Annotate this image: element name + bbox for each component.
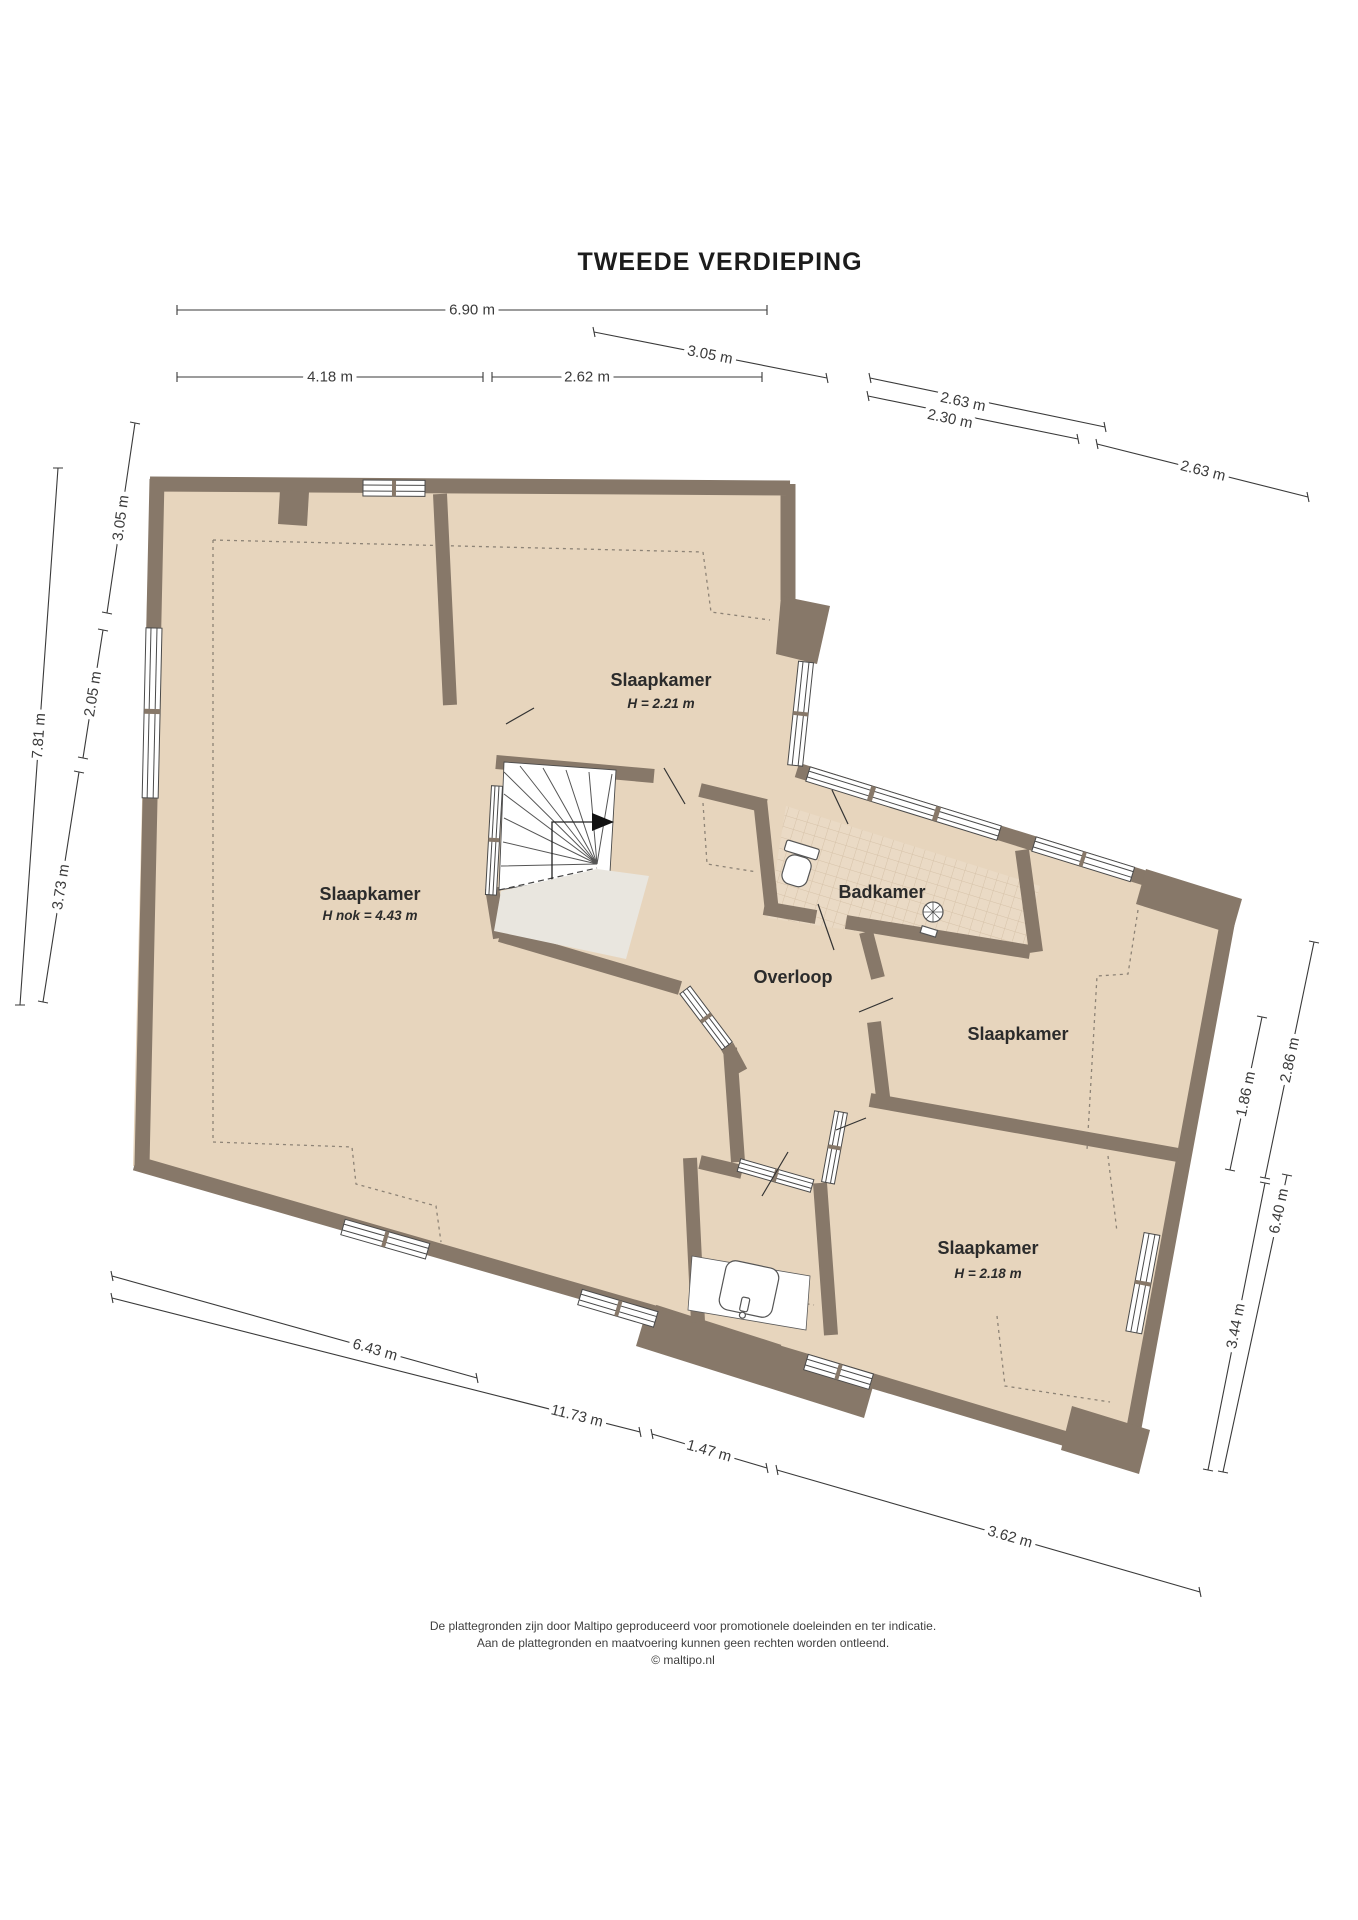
- dimension-label: 3.44 m: [1223, 1302, 1248, 1350]
- dimension-label: 3.05 m: [109, 494, 132, 542]
- dimension-label: 7.81 m: [29, 713, 49, 760]
- svg-text:© maltipo.nl: © maltipo.nl: [651, 1653, 715, 1667]
- svg-text:Overloop: Overloop: [753, 967, 832, 987]
- dimension-label: 2.63 m: [1179, 457, 1228, 485]
- window-left-wall: [142, 628, 162, 798]
- dimension-label: 3.05 m: [686, 342, 734, 367]
- svg-text:Slaapkamer: Slaapkamer: [937, 1238, 1038, 1258]
- dimension-label: 4.18 m: [307, 369, 353, 386]
- svg-text:Slaapkamer: Slaapkamer: [967, 1024, 1068, 1044]
- dimension-label: 1.86 m: [1233, 1070, 1259, 1118]
- room-label-landing: Overloop: [753, 967, 832, 987]
- floorplan-page: TWEEDE VERDIEPING: [0, 0, 1358, 1920]
- dimension-label: 6.90 m: [449, 302, 495, 319]
- room-label-bathroom: Badkamer: [838, 882, 925, 902]
- svg-text:Slaapkamer: Slaapkamer: [610, 670, 711, 690]
- room-label-bedroom-right: Slaapkamer: [967, 1024, 1068, 1044]
- dimension-label: 6.40 m: [1266, 1187, 1292, 1235]
- dimension-label: 3.62 m: [986, 1523, 1035, 1552]
- floor-area: [133, 478, 1236, 1460]
- footer-disclaimer: De plattegronden zijn door Maltipo gepro…: [430, 1619, 936, 1667]
- dimension-label: 1.47 m: [685, 1437, 734, 1466]
- svg-text:H nok = 4.43 m: H nok = 4.43 m: [323, 908, 418, 923]
- svg-text:De plattegronden zijn door Mal: De plattegronden zijn door Maltipo gepro…: [430, 1619, 936, 1633]
- page-title: TWEEDE VERDIEPING: [577, 248, 862, 276]
- svg-text:Slaapkamer: Slaapkamer: [319, 884, 420, 904]
- chimney-block: [278, 490, 309, 526]
- dimension-label: 2.62 m: [564, 369, 610, 386]
- svg-text:Badkamer: Badkamer: [838, 882, 925, 902]
- svg-text:Aan de plattegronden en maatvo: Aan de plattegronden en maatvoering kunn…: [477, 1636, 889, 1650]
- dimension-label: 3.73 m: [49, 863, 73, 911]
- svg-text:H = 2.21 m: H = 2.21 m: [627, 696, 694, 711]
- window-top-wall: [363, 480, 425, 496]
- dimension-label: 2.05 m: [81, 670, 105, 718]
- wall-block-topright-jut: [776, 596, 830, 664]
- floorplan-canvas: TWEEDE VERDIEPING: [0, 0, 1358, 1920]
- dimension-label: 11.73 m: [549, 1401, 605, 1430]
- room-label-bedroom-large: Slaapkamer H nok = 4.43 m: [319, 884, 420, 923]
- svg-text:H = 2.18 m: H = 2.18 m: [954, 1266, 1021, 1281]
- dimension-label: 2.86 m: [1277, 1036, 1303, 1084]
